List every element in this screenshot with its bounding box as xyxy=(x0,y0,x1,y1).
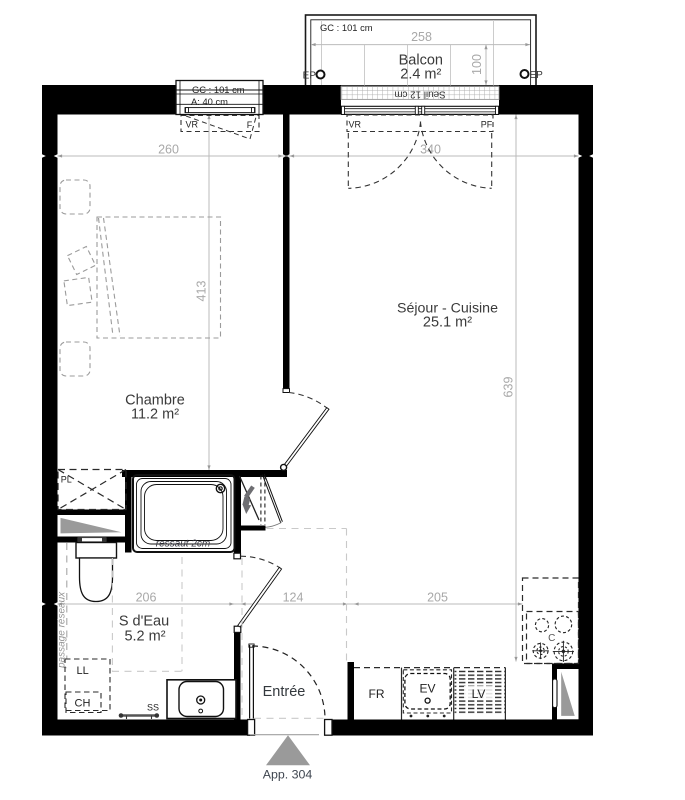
svg-text:25.1 m²: 25.1 m² xyxy=(423,315,472,331)
svg-text:206: 206 xyxy=(136,591,157,605)
svg-text:EV: EV xyxy=(419,681,435,695)
svg-text:EP: EP xyxy=(530,70,544,81)
svg-text:S d'Eau: S d'Eau xyxy=(119,614,169,630)
svg-text:ressaut 2cm: ressaut 2cm xyxy=(156,539,210,550)
svg-text:EP: EP xyxy=(303,70,317,81)
svg-text:SS: SS xyxy=(147,703,159,713)
svg-text:124: 124 xyxy=(283,591,304,605)
svg-text:11.2 m²: 11.2 m² xyxy=(131,407,179,423)
svg-text:A: 40 cm: A: 40 cm xyxy=(191,96,228,107)
svg-text:205: 205 xyxy=(427,591,448,605)
svg-text:GC : 101 cm: GC : 101 cm xyxy=(320,22,373,33)
svg-text:258: 258 xyxy=(411,30,432,44)
svg-text:PF: PF xyxy=(481,119,493,129)
svg-text:LV: LV xyxy=(472,687,486,701)
svg-text:VR: VR xyxy=(349,119,362,129)
svg-text:Entrée: Entrée xyxy=(263,684,306,700)
svg-text:App. 304: App. 304 xyxy=(263,768,313,782)
svg-text:Seuil 12 cm: Seuil 12 cm xyxy=(394,88,445,99)
svg-text:639: 639 xyxy=(502,377,516,398)
svg-text:VR: VR xyxy=(186,119,199,129)
svg-text:FR: FR xyxy=(369,687,385,701)
svg-text:413: 413 xyxy=(195,281,209,302)
svg-text:C: C xyxy=(548,633,555,644)
svg-text:2.4 m²: 2.4 m² xyxy=(400,67,441,83)
svg-text:260: 260 xyxy=(158,143,179,157)
svg-text:passage réseaux: passage réseaux xyxy=(57,591,68,669)
svg-text:PL: PL xyxy=(61,474,72,484)
svg-text:GC : 101 cm: GC : 101 cm xyxy=(192,84,245,95)
svg-text:F: F xyxy=(247,120,253,130)
svg-text:CH: CH xyxy=(75,697,91,709)
svg-text:LL: LL xyxy=(77,665,89,677)
svg-text:5.2 m²: 5.2 m² xyxy=(124,629,165,645)
svg-text:100: 100 xyxy=(470,54,484,75)
svg-text:340: 340 xyxy=(420,143,441,157)
